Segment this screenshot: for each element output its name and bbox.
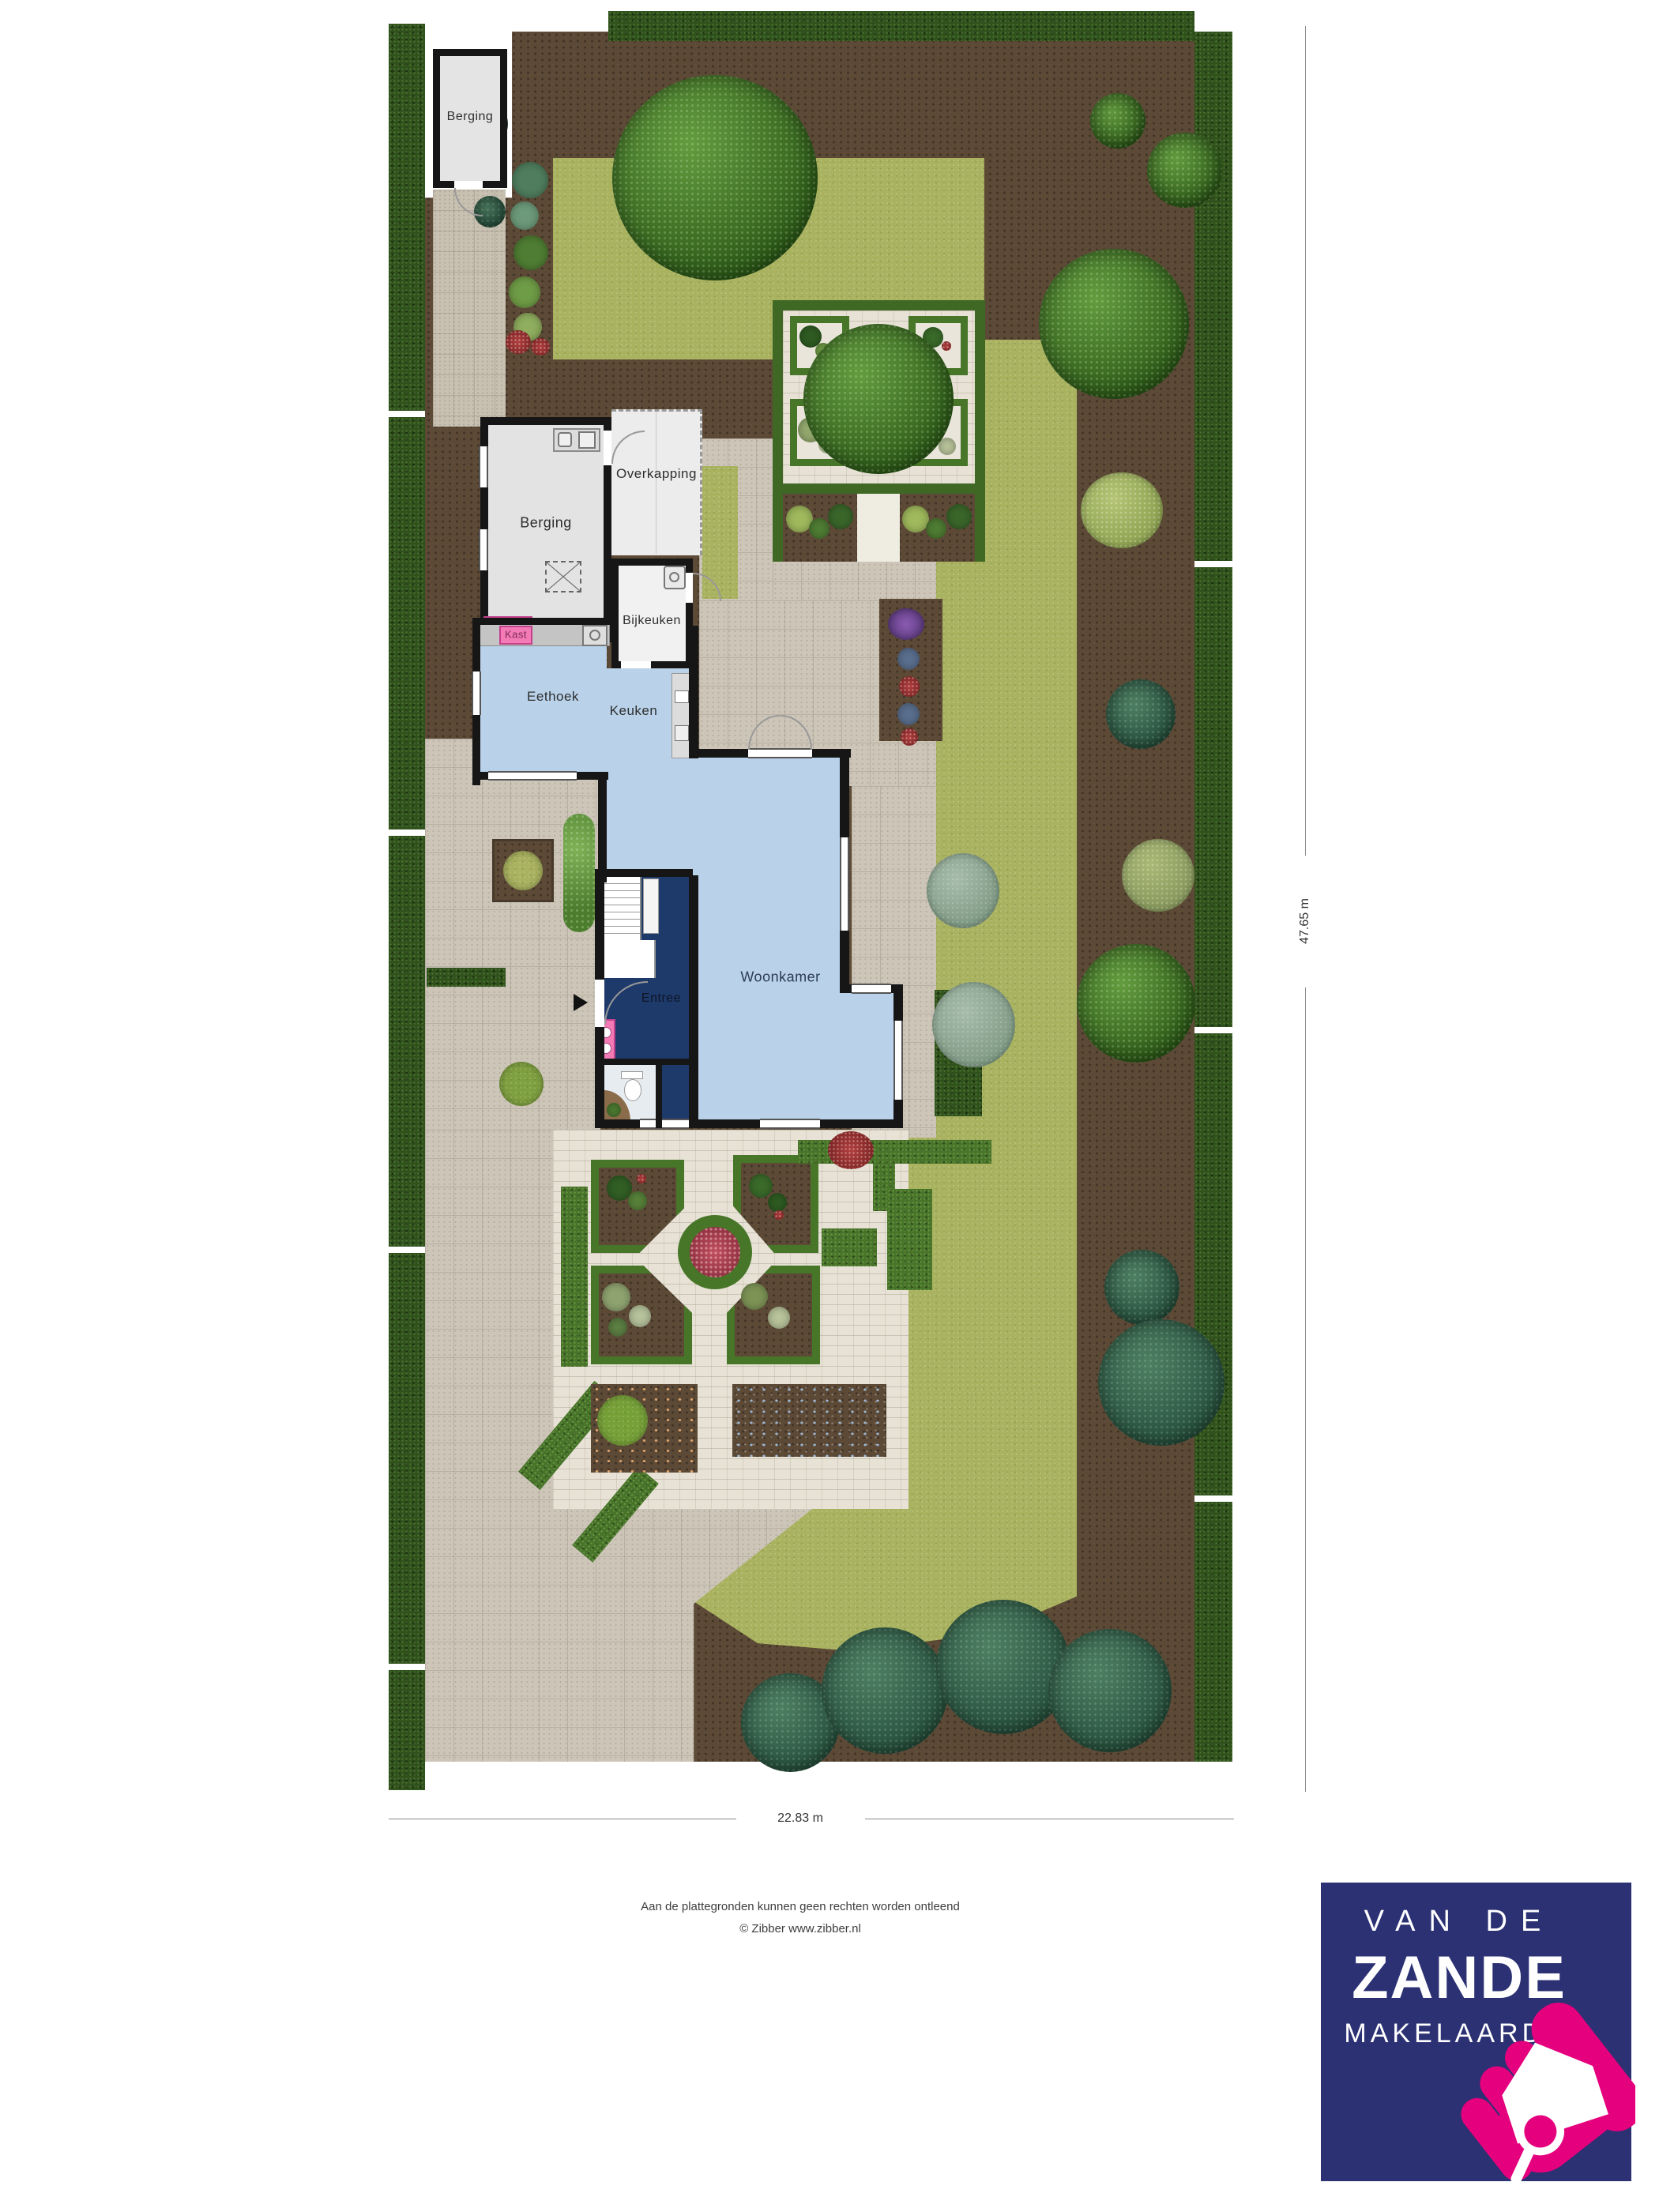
wall [595, 869, 693, 877]
window [488, 771, 577, 781]
red-flowers [531, 338, 550, 355]
bottom-tree-2 [822, 1627, 948, 1754]
cooktop-icon [675, 725, 689, 741]
tree [1104, 1250, 1179, 1325]
dimension-line-right [1305, 987, 1306, 1792]
wall [689, 875, 698, 1123]
eethoek-label: Eethoek [527, 689, 579, 705]
large-tree-top-right [1039, 249, 1189, 399]
bush-column [563, 814, 595, 932]
sink-bowl-icon [558, 432, 572, 447]
plant [749, 1174, 773, 1198]
shrub [946, 504, 972, 529]
overkapping-post-line [656, 412, 656, 554]
flower-purple [888, 608, 924, 640]
bush [512, 162, 548, 198]
bush [509, 276, 540, 308]
tree [1098, 1319, 1224, 1446]
woonkamer-label: Woonkamer [740, 969, 820, 986]
plant-pot [607, 1103, 621, 1117]
window [852, 984, 891, 994]
light-bush [1081, 472, 1163, 548]
parterre-hedge-east [887, 1189, 932, 1290]
plant [628, 1191, 647, 1210]
flower [942, 341, 951, 351]
red-flowers [506, 330, 531, 354]
flowerbed-south-right [732, 1384, 886, 1457]
hedge-right-4 [1194, 1502, 1232, 1762]
formal-garden-path [857, 494, 900, 562]
hedge-left-4 [389, 1253, 425, 1664]
tree [1077, 944, 1195, 1063]
planter-grass [503, 851, 543, 890]
page: { "plan": { "rooms": { "shed": "Berging"… [0, 0, 1659, 2212]
shrub [828, 504, 853, 529]
bijkeuken-door-gap2 [621, 661, 651, 668]
shed-door-gap [454, 181, 483, 188]
logo-hand-house-graphic [1450, 1979, 1635, 2183]
window [760, 1119, 820, 1129]
dimension-line-bottom [865, 1819, 1234, 1819]
bottom-tree-3 [936, 1600, 1070, 1734]
parterre-center-ring [678, 1215, 752, 1289]
kitchen-column-floor [607, 775, 694, 875]
hedge-left-5 [389, 1670, 425, 1790]
drainer-icon [578, 431, 596, 449]
kast-label: Kast [505, 629, 527, 641]
parterre-hedge-top-right [798, 1140, 991, 1164]
window [893, 1021, 903, 1100]
red-flower-bush [828, 1131, 874, 1169]
entry-arrow-icon [574, 994, 588, 1011]
hedge-left-1 [389, 24, 425, 411]
flowerbed-topiary [597, 1395, 648, 1446]
plant [768, 1307, 790, 1329]
bush [513, 235, 548, 270]
toilet-tank-icon [621, 1071, 643, 1079]
kitchen-sink-icon [675, 690, 689, 703]
hedge-right-1 [1194, 32, 1232, 561]
parterre-hedge-block [822, 1228, 877, 1266]
garage-window [479, 446, 488, 487]
hedge-right-2 [1194, 567, 1232, 1027]
dark-bush [1147, 133, 1222, 208]
wall [840, 749, 849, 837]
front-door-gap [595, 980, 604, 1027]
plant [768, 1193, 787, 1212]
bijkeuken-door-gap [686, 573, 693, 603]
wall [689, 626, 698, 758]
eethoek-floor [480, 646, 607, 775]
window [472, 671, 481, 715]
topiary-ball [499, 1062, 544, 1106]
shed-label: Berging [447, 110, 494, 124]
woonkamer-floor-upper [694, 752, 848, 989]
agency-logo: VAN DE ZANDE MAKELAARDIJ [1321, 1883, 1631, 2181]
flower [774, 1210, 784, 1220]
flower-slate [897, 648, 920, 670]
shrub [926, 518, 946, 539]
toilet-bowl-icon [624, 1079, 641, 1101]
shrub [809, 518, 829, 539]
bijkeuken-label: Bijkeuken [623, 614, 681, 628]
plant [608, 1318, 627, 1337]
window [840, 837, 849, 931]
sage-bush [932, 982, 1015, 1067]
hedge-left-2 [389, 417, 425, 829]
height-dimension: 47.65 m [1298, 898, 1312, 944]
stair-closet [643, 878, 659, 934]
hedge-left-3 [389, 836, 425, 1247]
disclaimer-line-2: © Zibber www.zibber.nl [739, 1922, 861, 1935]
wall [595, 1059, 693, 1065]
appliance-drum-icon [589, 630, 600, 641]
skylight-dashed-icon [545, 561, 581, 592]
hedge-top [608, 11, 1194, 41]
overkapping-label: Overkapping [616, 466, 697, 482]
large-tree-top [612, 75, 818, 280]
wall [598, 772, 607, 882]
width-dimension: 22.83 m [777, 1811, 823, 1826]
bush [1106, 679, 1176, 749]
staircase [604, 877, 641, 940]
garage-door-gap [604, 431, 611, 465]
bottom-tree-4 [1048, 1629, 1172, 1752]
bush [510, 201, 539, 230]
stair-landing [604, 940, 656, 978]
dimension-line-bottom [389, 1819, 736, 1819]
washer-drum-icon [669, 572, 679, 582]
entree-label: Entree [641, 991, 681, 1006]
hedge-strip-west [427, 968, 506, 987]
garage-label: Berging [520, 515, 572, 532]
plant [741, 1283, 768, 1310]
shrub [902, 506, 929, 532]
sage-tree [1122, 839, 1194, 912]
plant [629, 1305, 651, 1327]
wall [472, 618, 615, 625]
plant [602, 1283, 630, 1311]
keuken-label: Keuken [610, 703, 658, 719]
flower-red [901, 728, 918, 746]
wall [840, 931, 849, 992]
logo-line-van-de: VAN DE [1329, 1905, 1589, 1939]
overkapping-area [611, 409, 702, 555]
flower-slate [897, 703, 920, 725]
dark-bush [1090, 93, 1145, 149]
woonkamer-floor-lower [694, 989, 899, 1123]
disclaimer-line-1: Aan de plattegronden kunnen geen rechten… [641, 1900, 960, 1913]
garden-site-plan: Berging Berging Overkapping Bijkeuken Ka… [0, 0, 1659, 2212]
wall [656, 1059, 662, 1128]
window [640, 1119, 689, 1129]
flower [637, 1174, 646, 1183]
sage-bush [927, 853, 999, 928]
garage-window [479, 529, 488, 570]
dimension-line-right [1305, 26, 1306, 856]
flower-red [899, 676, 920, 697]
formal-garden-tree [803, 324, 954, 474]
parterre-hedge-left [561, 1187, 588, 1367]
